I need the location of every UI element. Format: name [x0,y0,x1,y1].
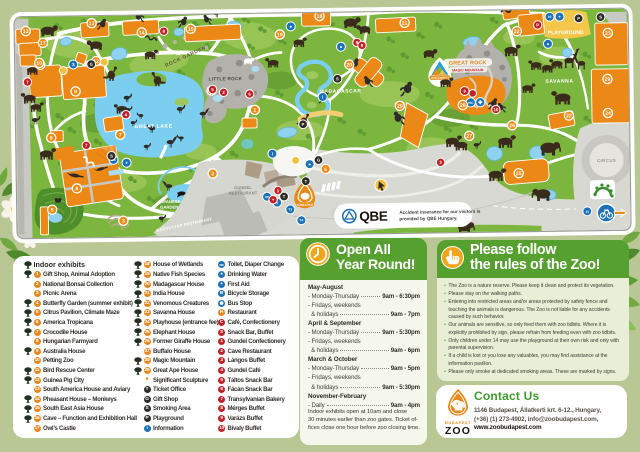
svg-text:10: 10 [493,107,499,112]
svg-text:1: 1 [253,108,256,114]
svg-text:GARDEN: GARDEN [160,204,178,209]
svg-text:WC: WC [468,101,474,105]
svg-text:26: 26 [509,123,515,129]
svg-text:●: ● [308,162,311,167]
svg-text:P: P [302,122,305,127]
svg-text:22: 22 [566,113,572,119]
svg-text:+: + [558,14,561,19]
svg-text:21: 21 [402,21,408,27]
svg-text:LITTLE ROCK: LITTLE ROCK [209,76,243,81]
svg-text:ZOO: ZOO [445,425,471,436]
svg-text:T4: T4 [300,218,304,222]
svg-text:27: 27 [466,134,472,140]
svg-text:GREAT ROCK: GREAT ROCK [449,60,487,67]
svg-text:GUNDEL: GUNDEL [234,185,252,190]
svg-text:13: 13 [89,21,95,27]
svg-text:24: 24 [605,111,611,117]
svg-text:15: 15 [188,27,194,33]
svg-text:2: 2 [211,171,214,177]
svg-text:●: ● [547,41,550,46]
svg-text:13: 13 [23,29,29,35]
svg-text:i: i [272,151,273,156]
svg-text:G: G [317,158,320,163]
svg-text:S: S [599,15,602,20]
svg-text:5: 5 [51,208,54,214]
svg-text:●: ● [340,44,343,49]
svg-text:G: G [90,62,93,67]
svg-text:CIRCUS: CIRCUS [597,158,616,163]
svg-text:8: 8 [50,136,53,142]
svg-text:FI: FI [586,210,589,214]
svg-text:FŐBEJÁRAT: FŐBEJÁRAT [297,202,314,207]
svg-text:JAPANESE: JAPANESE [158,199,181,204]
svg-text:MAGIC MOUNTAIN: MAGIC MOUNTAIN [452,68,484,72]
svg-text:RESTAURANT: RESTAURANT [229,190,258,195]
svg-text:P: P [536,23,539,28]
svg-text:9: 9 [74,89,77,95]
svg-text:GREAT LAKE: GREAT LAKE [134,124,172,131]
svg-text:3: 3 [122,219,125,225]
svg-text:18: 18 [317,14,323,20]
svg-text:7: 7 [119,133,122,139]
svg-text:29: 29 [605,77,611,83]
svg-text:i: i [322,95,323,100]
svg-text:29: 29 [397,104,403,110]
svg-text:S: S [110,153,113,158]
svg-text:+: + [125,160,128,165]
svg-text:QBE: QBE [359,209,388,224]
svg-text:22: 22 [514,29,520,35]
svg-text:SAVANNA: SAVANNA [545,78,573,84]
svg-text:●: ● [289,24,292,29]
svg-text:PLAYGROUND: PLAYGROUND [548,30,584,37]
svg-text:10: 10 [36,61,42,67]
svg-text:17: 17 [40,41,46,47]
svg-text:provided by QBE Hungary.: provided by QBE Hungary. [399,216,457,222]
svg-text:S: S [336,76,339,81]
svg-text:T2: T2 [288,208,292,212]
svg-text:10: 10 [548,15,552,19]
svg-text:P: P [577,16,580,21]
svg-text:19: 19 [277,32,283,38]
svg-text:23: 23 [605,31,611,37]
svg-text:20: 20 [346,62,352,68]
svg-text:28: 28 [460,103,466,109]
svg-text:14: 14 [139,30,145,36]
svg-text:25: 25 [516,171,522,177]
svg-text:6: 6 [75,186,78,192]
svg-text:E: E [324,167,327,172]
